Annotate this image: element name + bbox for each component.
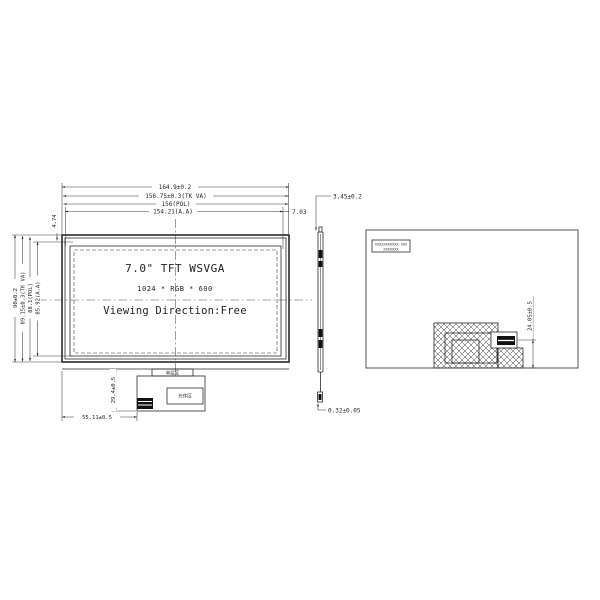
part-number-line2: XXXXXXX [383, 247, 399, 251]
dim-aa-top-offset: 4.74 [51, 209, 59, 241]
panel-resolution: 1024 * RGB * 600 [137, 285, 212, 293]
dim-height-outline: 90±0.2 [11, 235, 19, 362]
viewing-direction: Viewing Direction:Free [103, 305, 246, 317]
dim-connector-offset-label: 24.05±0.5 [528, 301, 534, 331]
dim-fpc-thickness-label: 0.32±0.05 [328, 407, 361, 414]
dim-width-aa: 154.21(A.A) 7.03 [65, 208, 307, 216]
dim-fpc-width: 55.11±0.5 [62, 371, 137, 421]
dim-height-aa-label: 85.92(A.A) [36, 281, 42, 314]
side-profile [318, 227, 323, 372]
fpc-detail: 单层区 元件区 29.4±0.5 55.11±0.5 [62, 369, 289, 421]
dim-fpc-thickness: 0.32±0.05 [318, 404, 361, 415]
dim-width-va-label: 156.75±0.3(TK VA) [145, 193, 206, 200]
front-view: 7.0" TFT WSVGA 1024 * RGB * 600 Viewing … [11, 183, 312, 379]
panel-title: 7.0" TFT WSVGA [125, 262, 225, 275]
dim-height-aa: 85.92(A.A) [34, 242, 42, 356]
dim-fpc-width-label: 55.11±0.5 [82, 415, 112, 421]
part-number-line1: XXXXXXXXXXX-XXX [375, 243, 408, 247]
dim-height-outline-label: 90±0.2 [13, 288, 19, 308]
back-connector [491, 332, 517, 348]
drawing-sheet: { "front": { "title": "7.0\" TFT WSVGA",… [0, 0, 600, 600]
fpc-single-layer-label: 单层区 [166, 370, 180, 377]
back-view: XXXXXXXXXXX-XXX XXXXXXX 24.05±0.5 [366, 230, 578, 368]
dim-width-pol-label: 156(POL) [162, 201, 191, 208]
dim-width-pol: 156(POL) [64, 200, 289, 208]
side-fpc-tail [318, 372, 323, 402]
dim-height-pol: 88.1(POL) [26, 237, 34, 361]
dim-height-va: 89.15±0.3(TK VA) [19, 236, 27, 362]
dim-aa-right-offset-label: 7.03 [292, 209, 307, 216]
dim-height-va-label: 89.15±0.3(TK VA) [21, 272, 27, 325]
part-number-label-box: XXXXXXXXXXX-XXX XXXXXXX [372, 240, 410, 252]
dim-width-outline-label: 164.9±0.2 [159, 184, 192, 191]
side-view: 3.45±0.2 0.32±0.05 [316, 194, 362, 415]
dim-width-outline: 164.9±0.2 [62, 183, 289, 191]
dim-fpc-height-label: 29.4±0.5 [111, 377, 117, 404]
dim-fpc-height: 29.4±0.5 [110, 369, 136, 411]
fpc-connector [137, 398, 153, 409]
dim-height-pol-label: 88.1(POL) [28, 283, 34, 313]
technical-drawing: 7.0" TFT WSVGA 1024 * RGB * 600 Viewing … [0, 0, 600, 600]
fpc-component-area-label: 元件区 [178, 392, 192, 399]
dim-thickness-label: 3.45±0.2 [333, 194, 362, 201]
dim-aa-top-offset-label: 4.74 [52, 214, 58, 228]
dim-thickness: 3.45±0.2 [316, 194, 362, 231]
dim-width-va: 156.75±0.3(TK VA) [63, 192, 289, 200]
dim-width-aa-label: 154.21(A.A) [153, 209, 193, 216]
